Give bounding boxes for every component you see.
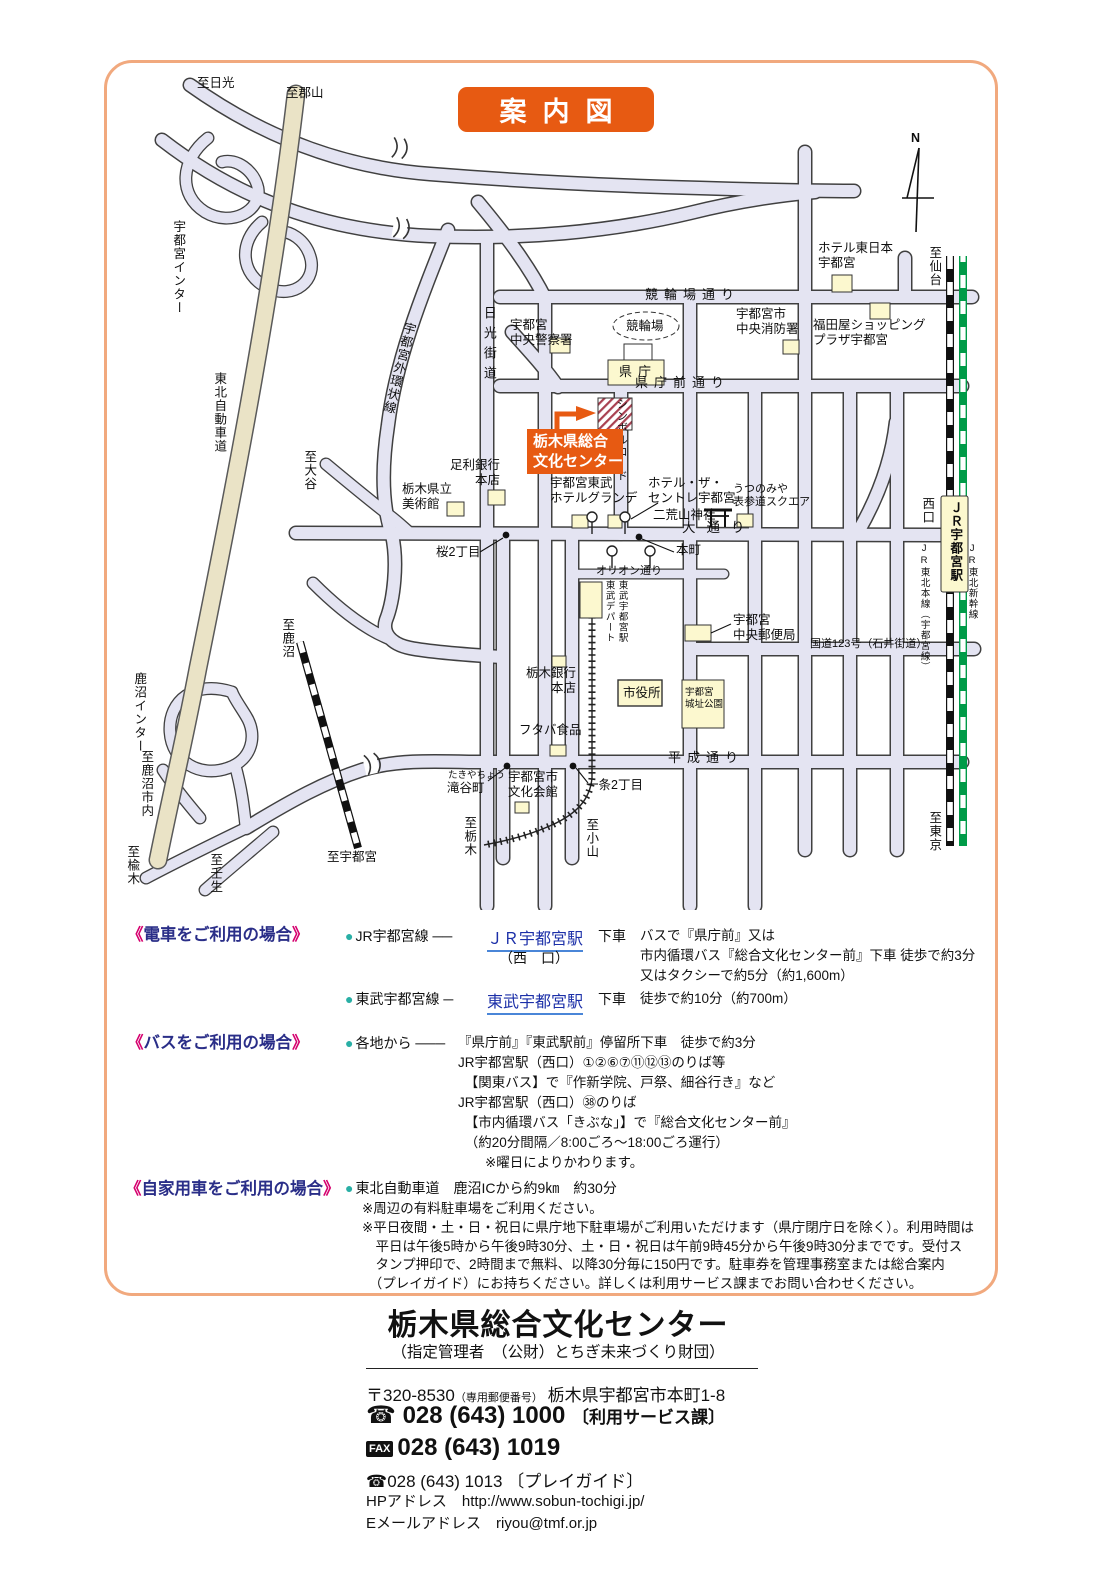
map-label-kanuma-ic: 鹿沼インター <box>131 672 146 753</box>
map-label-police: 宇都宮 中央警察署 <box>510 318 573 349</box>
facility-manager: （指定管理者 （公財）とちぎ未来づくり財団） <box>0 1340 1116 1362</box>
map-label-utsunomiya-ic: 宇都宮インター <box>170 220 185 315</box>
dash: ─ <box>443 991 453 1007</box>
map-label-futarasan: 二荒山神社 <box>653 508 716 523</box>
email-value: riyou@tmf.or.jp <box>496 1515 597 1532</box>
tel2-dept: 〔プレイガイド〕 <box>507 1472 643 1491</box>
bus-heading-text: バスをご利用の場合 <box>144 1034 293 1052</box>
map-label-niregi: 至楡木 <box>124 845 139 886</box>
map-label-mibu: 至壬生 <box>207 853 222 894</box>
car-note-parking: ※周辺の有料駐車場をご利用ください。 <box>362 1200 603 1219</box>
facility-name: 栃木県総合文化センター <box>0 1300 1116 1344</box>
map-label-omotesando: うつのみや 表参道スクエア <box>733 483 810 510</box>
map-label-tokyo: 至東京 <box>926 811 941 852</box>
map-label-to-tochigi: 至栃木 <box>461 816 476 857</box>
map-label-shobo: 宇都宮市 中央消防署 <box>736 307 799 338</box>
map-label-kencho: 県庁 <box>619 364 657 380</box>
bracket-close: 》 <box>292 1034 309 1052</box>
tobu-line-name: 東武宇都宮線 <box>355 991 439 1007</box>
bus-from: 各地から <box>355 1035 411 1051</box>
station-tobu-utsunomiya: 東武宇都宮駅 <box>487 988 583 1015</box>
map-label-takiya-kana: たきやちょう <box>448 770 505 782</box>
car-heading-text: 自家用車をご利用の場合 <box>142 1180 324 1198</box>
map-label-hotel-higashi: ホテル東日本 宇都宮 <box>818 241 893 272</box>
dash: ─── <box>415 1035 445 1051</box>
map-label-oya: 至大谷 <box>301 450 316 491</box>
train-row-tobu-line: ●東武宇都宮線 ─ <box>345 989 453 1009</box>
map-label-ichijo2: 一条2丁目 <box>586 778 643 793</box>
hp-row: HPアドレス http://www.sobun-tochigi.jp/ <box>366 1490 644 1511</box>
fax-number: 028 (643) 1019 <box>397 1434 560 1461</box>
hp-label: HPアドレス <box>366 1493 447 1510</box>
tel1-number: 028 (643) 1000 <box>403 1402 566 1429</box>
bracket-close: 》 <box>292 926 309 944</box>
map-label-kanuma-rail: 至鹿沼 <box>279 618 294 659</box>
tobu-action: 下車 <box>598 989 626 1009</box>
bullet-icon: ● <box>345 1035 353 1051</box>
station-jr-exit: （西 口） <box>499 948 569 968</box>
map-label-post-office: 宇都宮 中央郵便局 <box>733 613 796 644</box>
map-label-route123: 国道123号（石井街道） <box>810 638 927 651</box>
map-label-compass-n: N <box>911 131 920 146</box>
bullet-icon: ● <box>345 991 353 1007</box>
bracket-close: 》 <box>323 1180 340 1198</box>
bus-row-from: ●各地から ─── <box>345 1033 445 1053</box>
jr-details: バスで『県庁前』又は 市内循環バス『総合文化センター前』下車 徒歩で約3分 又は… <box>640 926 975 986</box>
bullet-icon: ● <box>345 928 353 944</box>
map-label-bunka-kaikan: 宇都宮市 文化会館 <box>508 770 558 801</box>
map-label-to-oyama: 至小山 <box>583 818 598 859</box>
bullet-icon: ● <box>345 1180 353 1196</box>
map-label-shiyakusho: 市役所 <box>623 686 661 701</box>
email-row: Eメールアドレス riyou@tmf.or.jp <box>366 1512 597 1533</box>
jr-line-name: JR宇都宮線 <box>355 928 428 944</box>
fax-icon: FAX <box>366 1441 393 1457</box>
cultural-center-highlight: 栃木県総合 文化センター <box>527 429 623 474</box>
map-label-hotel-centre: ホテル・ザ・ セントレ宇都宮 <box>648 476 736 507</box>
map-label-orion-dori: オリオン通り <box>596 565 662 578</box>
car-section-heading: 《自家用車をご利用の場合》 <box>125 1175 340 1199</box>
bracket-open: 《 <box>127 926 144 944</box>
map-label-fukudaya: 福田屋ショッピング プラザ宇都宮 <box>813 318 926 349</box>
map-label-keirinjo: 競輪場 <box>626 319 664 334</box>
bracket-open: 《 <box>127 1034 144 1052</box>
map-label-museum: 栃木県立 美術館 <box>402 482 452 513</box>
map-label-to-utsunomiya: 至宇都宮 <box>327 850 377 865</box>
bracket-open: 《 <box>125 1180 142 1198</box>
dash: ── <box>432 928 452 944</box>
map-label-tobu-station: 東武宇都宮駅 <box>616 580 628 643</box>
tel2-row: ☎028 (643) 1013 〔プレイガイド〕 <box>366 1467 643 1492</box>
map-label-tobu-dept: 東武デパート <box>603 580 615 643</box>
expressway <box>158 94 296 860</box>
bus-section-heading: 《バスをご利用の場合》 <box>127 1029 309 1053</box>
tel2-number: 028 (643) 1013 <box>387 1472 502 1491</box>
map-label-tobu-hotel: 宇都宮東武 ホテルグランデ <box>550 476 638 507</box>
phone-icon: ☎ <box>366 1472 387 1491</box>
jr-action: 下車 <box>598 926 626 946</box>
map-label-nishiguchi: 西口 <box>919 497 934 524</box>
email-label: Eメールアドレス <box>366 1515 481 1532</box>
bus-details: 『県庁前』『東武駅前』停留所下車 徒歩で約3分 JR宇都宮駅（西口）①②⑥⑦⑪⑫… <box>458 1033 796 1173</box>
map-label-futaba: フタバ食品 <box>519 723 582 738</box>
train-row-jr-line: ●JR宇都宮線 ── <box>345 926 452 946</box>
phone-icon: ☎ <box>366 1402 396 1429</box>
car-route: 東北自動車道 鹿沼ICから約9㎞ 約30分 <box>355 1180 616 1196</box>
map-label-kanuma-city: 至鹿沼市内 <box>138 750 153 818</box>
map-title-badge: 案内図 <box>458 87 654 132</box>
train-heading-text: 電車をご利用の場合 <box>144 926 293 944</box>
compass-icon <box>902 148 934 232</box>
map-label-jr-tohoku-line: JR東北本線（宇都宮線） <box>918 543 930 672</box>
fax-row: FAX028 (643) 1019 <box>366 1434 560 1462</box>
map-label-jr-station: ＪＲ宇都宮駅 <box>947 501 962 582</box>
footer-divider <box>366 1368 758 1369</box>
tel1-dept: 〔利用サービス課〕 <box>572 1408 725 1427</box>
car-note-kencho-parking: ※平日夜間・土・日・祝日に県庁地下駐車場がご利用いただけます（県庁閉庁日を除く）… <box>362 1219 974 1293</box>
map-label-sendai: 至仙台 <box>926 246 941 287</box>
map-label-tohoku-expwy: 東北自動車道 <box>211 372 226 453</box>
hp-url: http://www.sobun-tochigi.jp/ <box>462 1493 645 1510</box>
page: 至日光至郡山宇都宮インター東北自動車道至大谷至鹿沼鹿沼インター至鹿沼市内至楡木至… <box>0 0 1116 1580</box>
map-label-takiya: 滝谷町 <box>447 781 485 796</box>
tel1-row: ☎ 028 (643) 1000 〔利用サービス課〕 <box>366 1401 725 1430</box>
map-label-jr-shinkansen: JR東北新幹線 <box>966 543 978 620</box>
tobu-details: 徒歩で約10分（約700m） <box>640 989 797 1009</box>
train-section-heading: 《電車をご利用の場合》 <box>127 921 309 945</box>
map-label-keirin-dori: 競輪場通り <box>645 287 740 303</box>
map-label-nikko-kaido: 日光街道 <box>481 306 497 386</box>
car-row-route: ●東北自動車道 鹿沼ICから約9㎞ 約30分 <box>345 1178 617 1198</box>
map-label-hommachi: 本町 <box>676 543 701 558</box>
map-label-nikko: 至日光 <box>197 76 235 91</box>
map-label-joshi-park: 宇都宮 城址公園 <box>685 687 723 710</box>
map-label-sakura2: 桜2丁目 <box>436 545 480 560</box>
map-label-heisei-dori: 平成通り <box>668 750 744 766</box>
map-label-koriyama: 至郡山 <box>286 86 324 101</box>
map-label-tochigi-bank: 栃木銀行 本店 <box>518 666 576 697</box>
